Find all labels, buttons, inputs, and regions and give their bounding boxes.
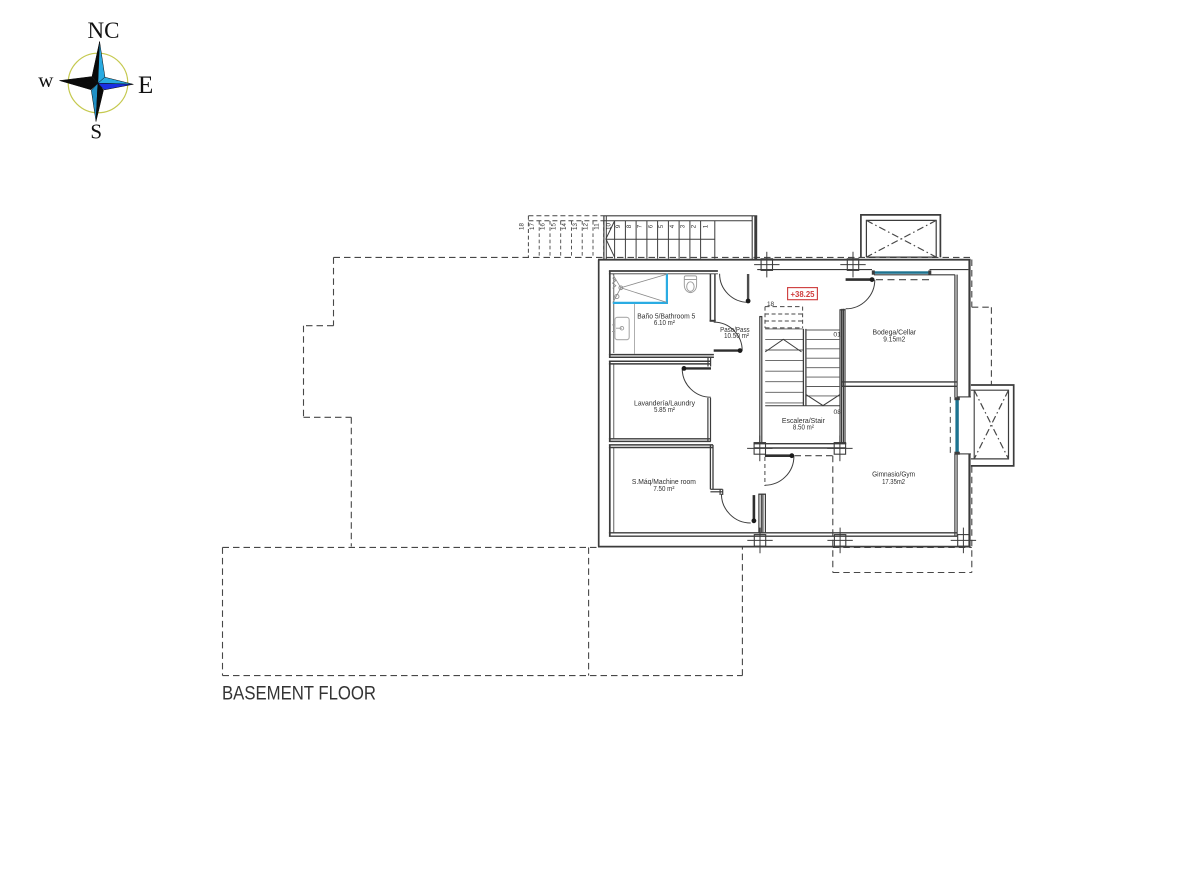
svg-text:2: 2 — [690, 224, 697, 228]
svg-text:4: 4 — [669, 224, 676, 228]
svg-text:+38.25: +38.25 — [791, 290, 815, 299]
svg-text:15: 15 — [550, 223, 557, 230]
svg-text:w: w — [38, 68, 54, 92]
svg-text:S: S — [90, 120, 102, 144]
svg-text:9: 9 — [615, 224, 622, 228]
svg-text:18: 18 — [767, 301, 775, 308]
svg-text:Bodega/Cellar: Bodega/Cellar — [873, 329, 917, 336]
svg-text:10: 10 — [605, 223, 612, 230]
svg-text:11: 11 — [593, 223, 600, 230]
svg-text:12: 12 — [583, 223, 590, 230]
svg-text:8.50 m²: 8.50 m² — [793, 425, 815, 432]
svg-text:16: 16 — [540, 223, 547, 230]
svg-text:1: 1 — [703, 224, 710, 228]
svg-text:13: 13 — [572, 223, 579, 230]
svg-text:5: 5 — [658, 224, 665, 228]
svg-text:17.35m2: 17.35m2 — [882, 479, 905, 486]
svg-text:18: 18 — [519, 223, 526, 230]
svg-text:7.50 m²: 7.50 m² — [653, 486, 675, 493]
svg-text:7: 7 — [637, 224, 644, 228]
svg-text:Gimnasio/Gym: Gimnasio/Gym — [872, 472, 915, 479]
svg-text:NC: NC — [88, 18, 120, 43]
svg-text:9.15m2: 9.15m2 — [883, 336, 905, 343]
svg-text:01: 01 — [833, 332, 841, 339]
svg-text:6.10 m²: 6.10 m² — [654, 320, 676, 327]
svg-text:6: 6 — [647, 224, 654, 228]
svg-text:3: 3 — [680, 224, 687, 228]
svg-text:08: 08 — [833, 409, 841, 416]
svg-text:17: 17 — [529, 223, 536, 230]
svg-text:8: 8 — [626, 224, 633, 228]
svg-text:10.50 m²: 10.50 m² — [724, 333, 750, 340]
svg-text:14: 14 — [561, 223, 568, 230]
svg-text:E: E — [138, 72, 153, 99]
svg-text:5.85 m²: 5.85 m² — [654, 407, 676, 414]
svg-text:BASEMENT FLOOR: BASEMENT FLOOR — [222, 684, 376, 705]
